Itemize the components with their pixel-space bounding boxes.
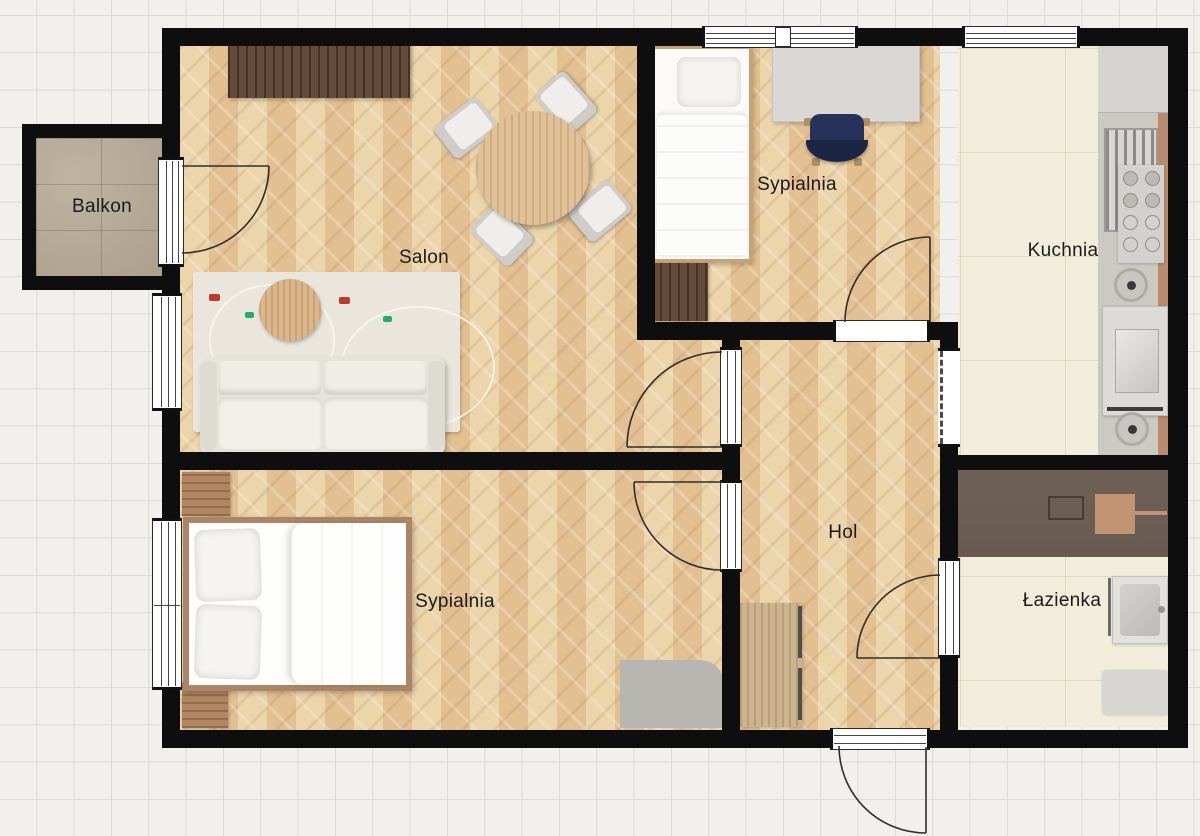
sofa <box>200 357 445 455</box>
floor-mat <box>620 660 724 728</box>
window-mullion <box>178 161 179 263</box>
bed-pillow <box>677 57 741 107</box>
window-mullion <box>966 33 1076 34</box>
passage-dashed-line <box>940 351 943 444</box>
burner-center <box>1128 425 1137 434</box>
window-center-post <box>775 27 791 47</box>
washing-machine <box>1102 670 1168 714</box>
bed-pillow <box>194 528 262 602</box>
sofa-seat-cushion <box>218 397 322 449</box>
burner <box>1115 412 1149 446</box>
window-mullion <box>161 522 162 686</box>
stove-knob <box>1123 193 1138 208</box>
stool <box>1095 494 1135 534</box>
oven <box>1102 306 1168 416</box>
stool-arm <box>1135 511 1167 515</box>
door-frame-line <box>735 484 736 568</box>
door-frame-line <box>735 351 736 443</box>
double-bed <box>183 517 412 691</box>
oven-door <box>1115 329 1159 393</box>
bed-pillow <box>194 604 263 680</box>
door-frame-line <box>834 743 926 744</box>
bedroom-top-window <box>702 26 858 48</box>
wall-salon-bedroom-top <box>637 46 655 340</box>
window-mullion <box>175 297 176 407</box>
salon-window <box>152 293 182 411</box>
toy-car-red <box>209 294 220 301</box>
chair-armrest <box>812 158 820 166</box>
room-label-salon: Salon <box>349 247 499 269</box>
toy-car-green <box>245 312 254 318</box>
floor-plan-canvas: Balkon Salon Sypialnia Kuchnia Hol Sypia… <box>0 0 1200 836</box>
stove-knob <box>1145 237 1160 252</box>
window-mullion <box>966 43 1076 44</box>
door-frame-line <box>953 562 954 654</box>
window-mullion <box>168 522 169 686</box>
door-frame-line <box>727 351 728 443</box>
coffee-table <box>259 279 321 341</box>
laptop <box>1048 496 1084 520</box>
wall-salon-bedroom-bottom <box>162 452 740 470</box>
sofa-armrest <box>200 361 217 451</box>
room-label-kuchnia: Kuchnia <box>988 240 1138 262</box>
stove-knob <box>1123 171 1138 186</box>
window-mullion <box>966 38 1076 39</box>
burner-center <box>1127 281 1136 290</box>
sofa-back-cushion <box>324 361 427 395</box>
office-chair <box>804 114 870 166</box>
door-frame-line <box>727 484 728 568</box>
entry-door-arc <box>839 746 926 833</box>
nightstand <box>182 472 230 516</box>
kitchen-window <box>962 26 1080 48</box>
sideboard <box>228 44 410 98</box>
stove-knob <box>1145 215 1160 230</box>
sofa-seat-cushion <box>324 397 428 449</box>
window-mullion <box>168 297 169 407</box>
door-frame-line <box>834 735 926 736</box>
toy-car-green <box>383 316 392 322</box>
bathroom-door-opening <box>938 558 960 658</box>
wall-outer-bottom <box>162 730 1188 748</box>
kitchen-passage-opening <box>938 348 960 447</box>
burner <box>1114 268 1148 302</box>
sofa-armrest <box>428 361 445 451</box>
salon-door-opening <box>720 347 742 447</box>
chair-armrest <box>854 158 862 166</box>
toy-car-red <box>339 297 350 304</box>
wardrobe-door-rail <box>798 668 802 720</box>
wall-outer-right <box>1168 28 1188 748</box>
faucet <box>1158 606 1165 613</box>
bedroom-bottom-window <box>152 518 182 690</box>
window-mullion <box>154 605 180 606</box>
door-frame-line <box>945 562 946 654</box>
fridge <box>1098 46 1168 113</box>
stove-knob <box>1145 193 1160 208</box>
room-label-balkon: Balkon <box>27 196 177 218</box>
bedroom-top-door-opening <box>833 320 930 342</box>
room-label-hol: Hol <box>768 522 918 544</box>
window-mullion <box>175 522 176 686</box>
room-label-lazienka: Łazienka <box>987 590 1137 612</box>
wardrobe-door-rail <box>798 606 802 658</box>
stove-knob <box>1123 215 1138 230</box>
entry-door-opening <box>830 728 930 750</box>
sofa-back-cushion <box>218 361 321 395</box>
dining-table <box>476 111 590 225</box>
dresser <box>651 263 708 321</box>
wardrobe <box>740 603 802 727</box>
oven-handle <box>1107 407 1163 411</box>
room-label-sypialnia-bottom: Sypialnia <box>380 591 530 613</box>
desk <box>772 44 920 122</box>
wall-kitchen-bathroom <box>958 455 1168 470</box>
room-label-sypialnia-top: Sypialnia <box>722 174 872 196</box>
bedroom-bottom-door-opening <box>720 480 742 572</box>
window-mullion <box>161 297 162 407</box>
stove-knob <box>1145 171 1160 186</box>
single-bed <box>651 45 753 263</box>
